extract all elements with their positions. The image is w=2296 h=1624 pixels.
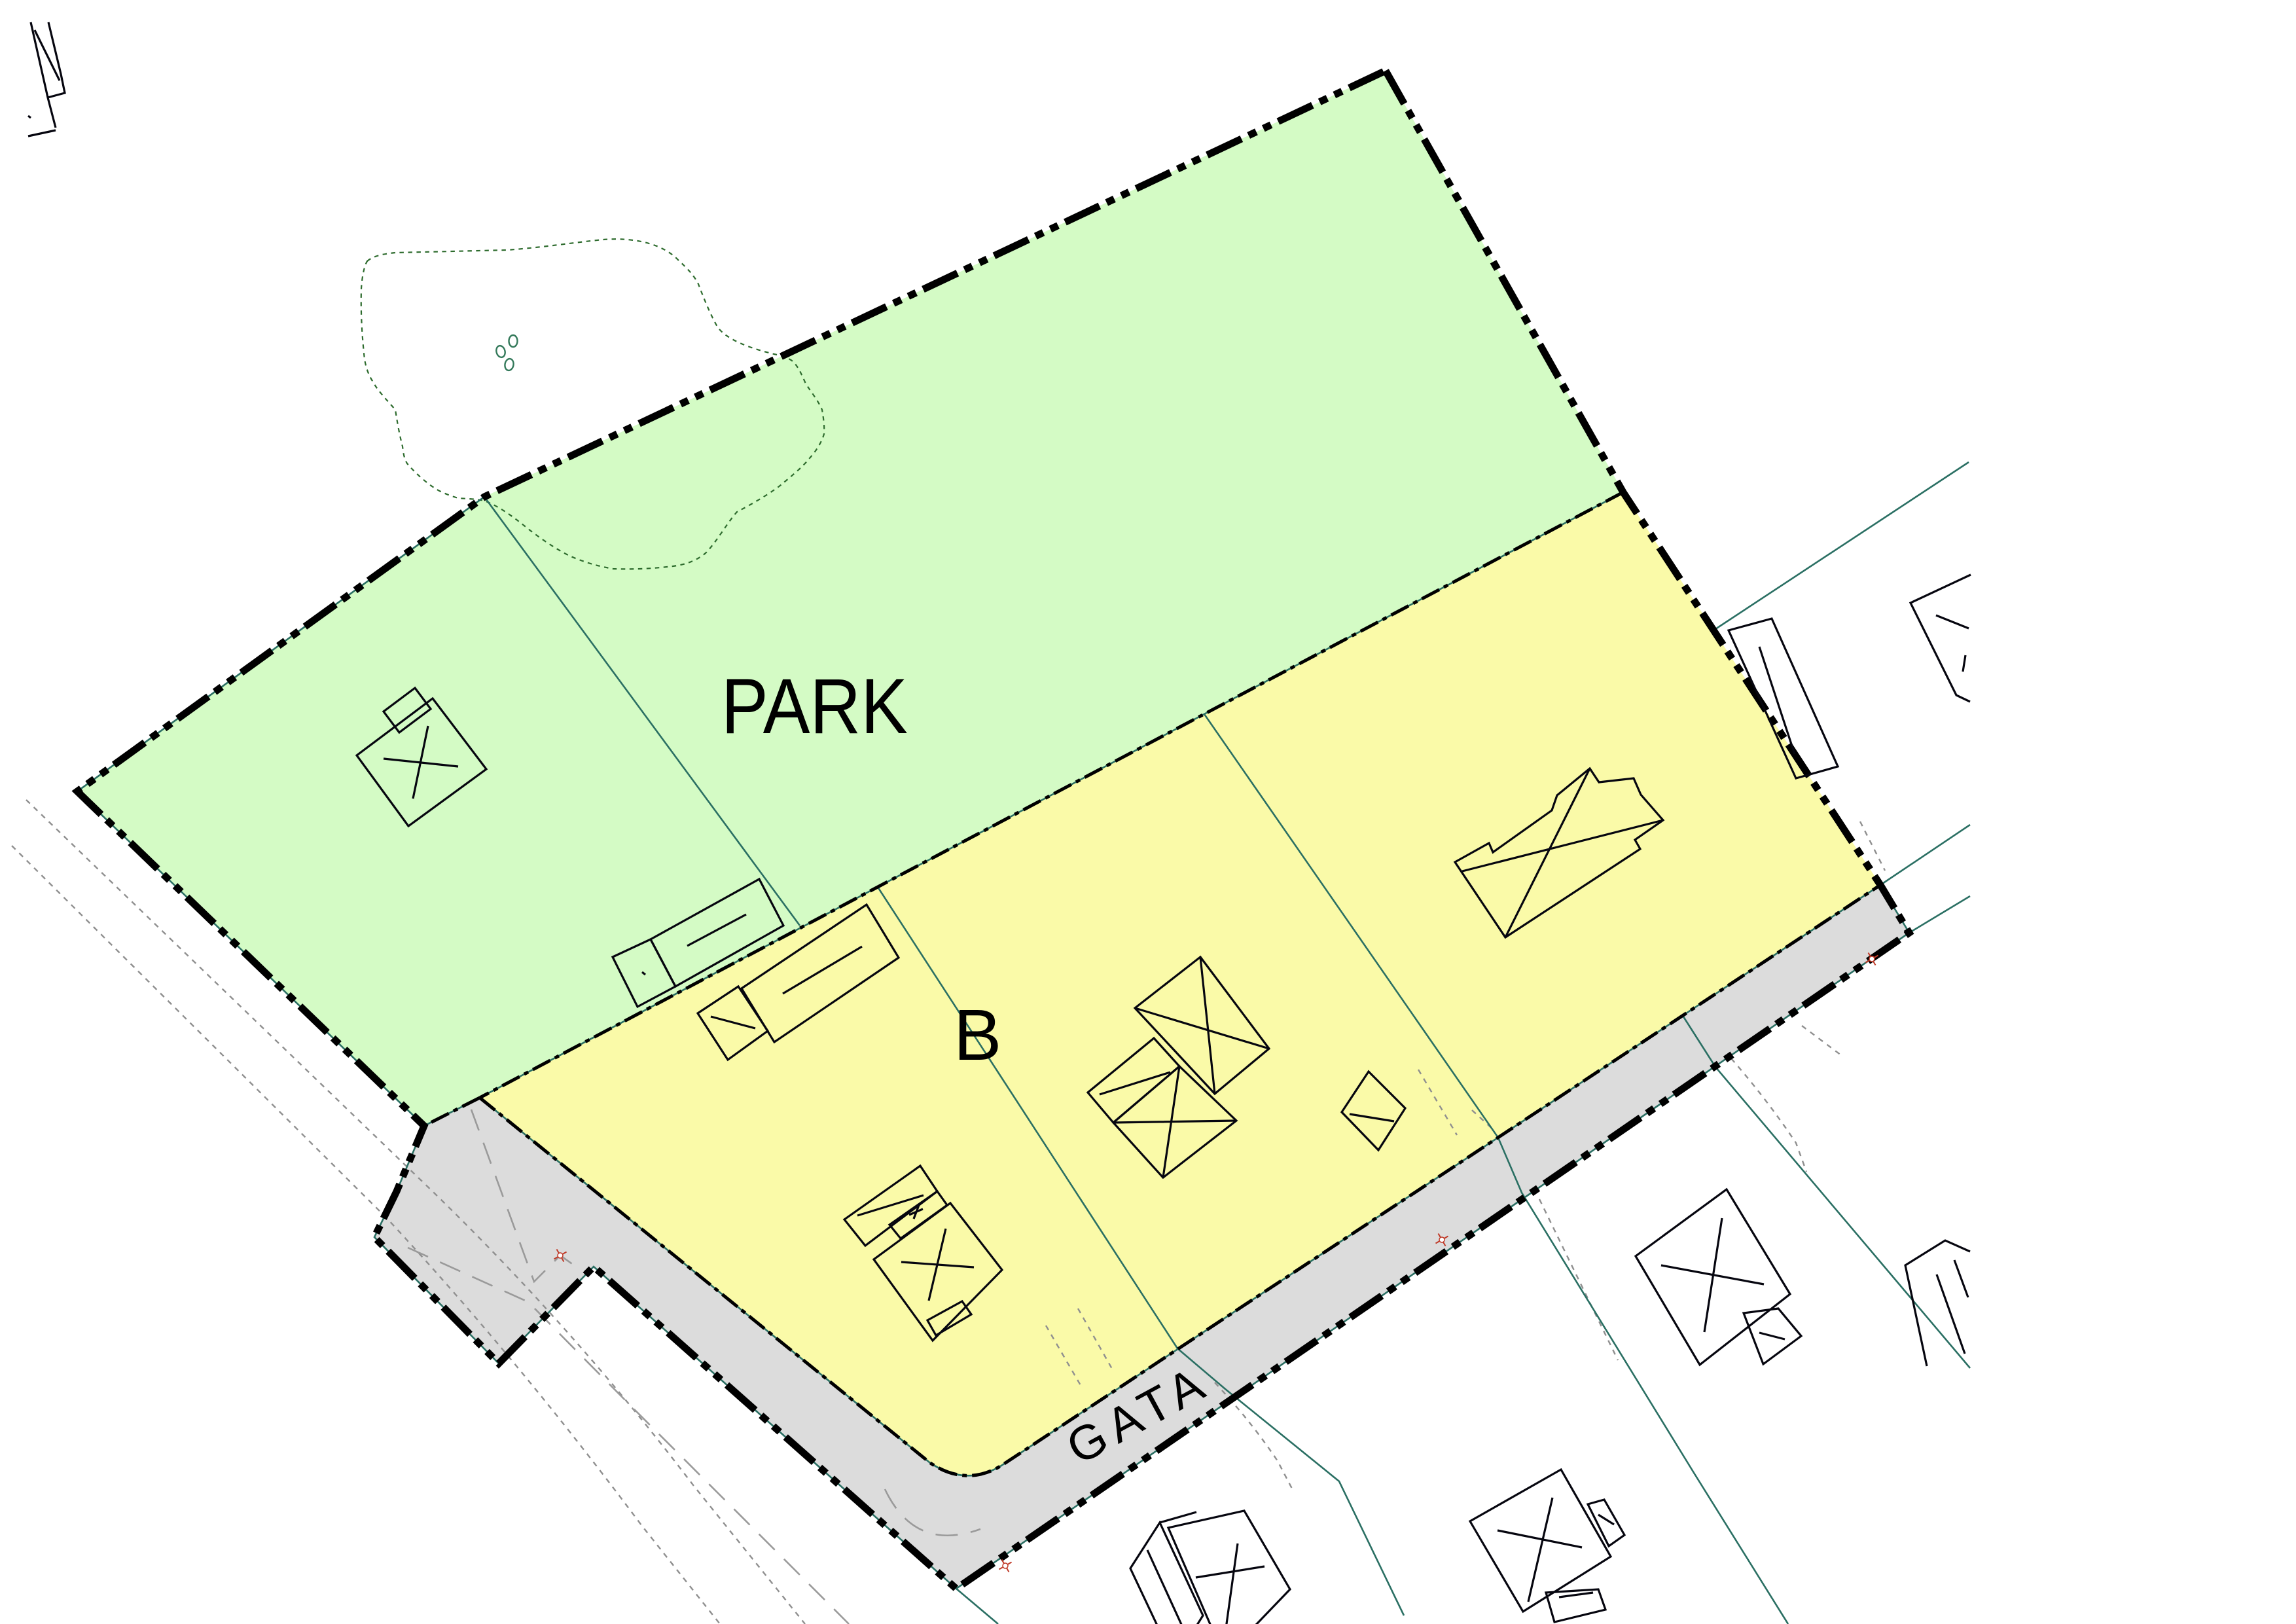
svg-text:PARK: PARK bbox=[721, 662, 908, 750]
svg-text:B: B bbox=[954, 995, 1001, 1075]
